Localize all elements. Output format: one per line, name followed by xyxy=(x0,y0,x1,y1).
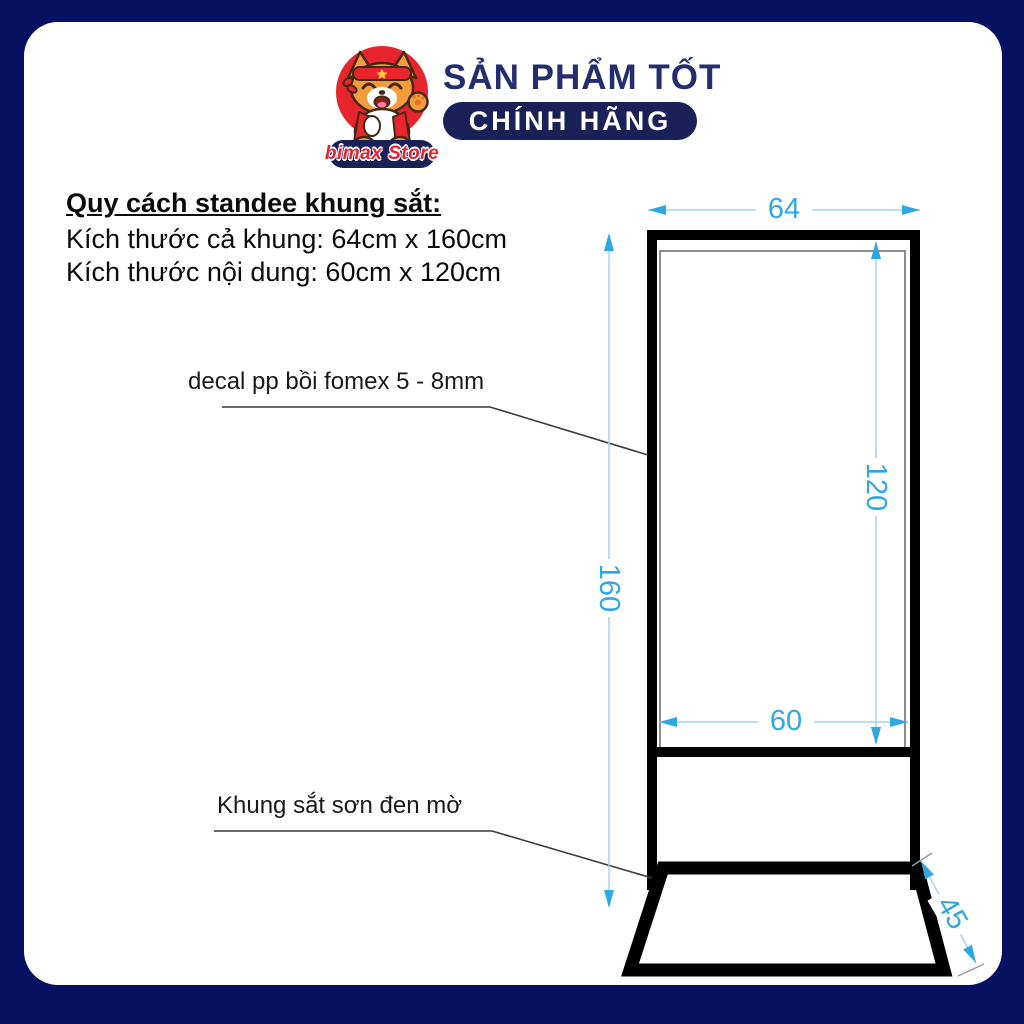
dimension-content-width: 60 xyxy=(758,706,814,736)
content-card xyxy=(24,22,1002,985)
brand-name: bimax Store xyxy=(325,143,439,165)
slogan-badge: CHÍNH HÃNG xyxy=(443,102,697,140)
dimension-frame-width: 64 xyxy=(756,194,812,224)
spec-frame-size: Kích thước cả khung: 64cm x 160cm xyxy=(66,223,507,256)
slogan-badge-text: CHÍNH HÃNG xyxy=(469,106,672,137)
dimension-content-height: 120 xyxy=(861,458,891,516)
callout-frame: Khung sắt sơn đen mờ xyxy=(217,792,462,820)
spec-heading: Quy cách standee khung sắt: xyxy=(66,188,507,219)
callout-decal: decal pp bồi fomex 5 - 8mm xyxy=(188,368,484,396)
product-spec-image: { "colors": { "border_navy": "#061161", … xyxy=(0,0,1024,1024)
spec-content-size: Kích thước nội dung: 60cm x 120cm xyxy=(66,256,507,289)
spec-block: Quy cách standee khung sắt: Kích thước c… xyxy=(66,188,507,289)
slogan-title: SẢN PHẨM TỐT xyxy=(443,58,721,98)
brand-banner: bimax Store xyxy=(329,140,435,168)
dimension-frame-height: 160 xyxy=(594,559,624,617)
